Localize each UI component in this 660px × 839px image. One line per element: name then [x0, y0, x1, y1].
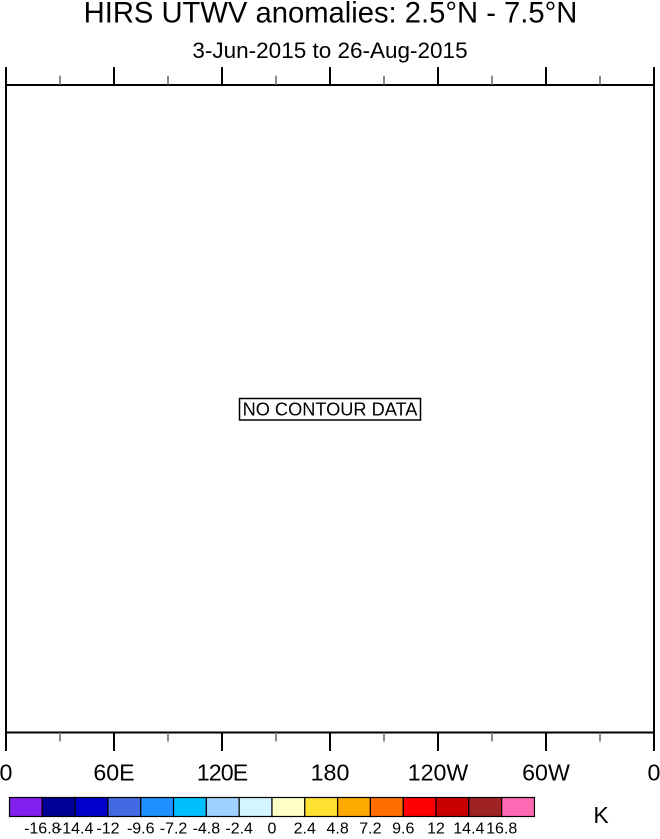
svg-text:3-Jun-2015 to 26-Aug-2015: 3-Jun-2015 to 26-Aug-2015 — [192, 38, 467, 63]
svg-text:-2.4: -2.4 — [225, 821, 253, 835]
svg-text:0: 0 — [648, 760, 660, 786]
svg-text:2.4: 2.4 — [294, 821, 316, 835]
svg-text:NO CONTOUR DATA: NO CONTOUR DATA — [243, 399, 419, 419]
svg-text:-14.4: -14.4 — [57, 821, 94, 835]
svg-text:0: 0 — [0, 760, 12, 786]
svg-text:-4.8: -4.8 — [193, 821, 221, 835]
svg-text:-16.8: -16.8 — [24, 821, 61, 835]
svg-text:16.8: 16.8 — [486, 821, 517, 835]
svg-text:60E: 60E — [93, 760, 134, 786]
svg-text:0: 0 — [268, 821, 277, 835]
svg-text:120E: 120E — [197, 760, 248, 786]
svg-text:-9.6: -9.6 — [127, 821, 155, 835]
svg-text:14.4: 14.4 — [453, 821, 484, 835]
svg-text:HIRS UTWV anomalies: 2.5°N - 7: HIRS UTWV anomalies: 2.5°N - 7.5°N — [84, 0, 578, 30]
svg-text:4.8: 4.8 — [326, 821, 348, 835]
svg-text:180: 180 — [311, 760, 350, 786]
svg-text:K: K — [593, 802, 609, 828]
svg-text:7.2: 7.2 — [359, 821, 381, 835]
svg-text:120W: 120W — [408, 760, 469, 786]
svg-text:-7.2: -7.2 — [160, 821, 188, 835]
svg-text:12: 12 — [427, 821, 445, 835]
svg-text:60W: 60W — [522, 760, 570, 786]
svg-text:-12: -12 — [96, 821, 119, 835]
svg-text:9.6: 9.6 — [392, 821, 414, 835]
